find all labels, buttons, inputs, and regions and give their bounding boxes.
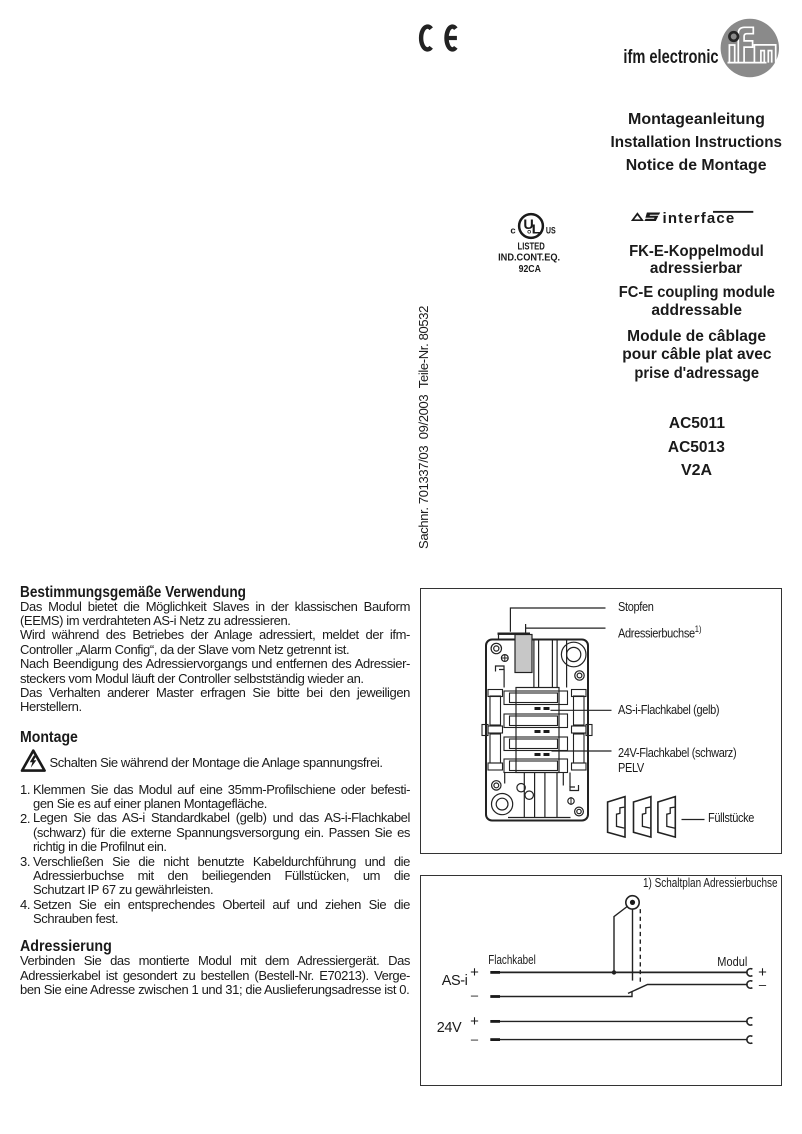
svg-text:L: L [532,222,541,237]
svg-text:–: – [758,977,766,992]
svg-text:24V: 24V [436,1020,461,1036]
svg-text:+: + [470,964,479,981]
svg-text:c: c [510,226,515,237]
svg-text:92CA: 92CA [519,264,541,275]
svg-text:Flachkabel: Flachkabel [488,953,535,967]
svg-text:US: US [546,225,556,236]
svg-text:–: – [470,1032,478,1047]
svg-text:1) Schaltplan Adressierbuchse: 1) Schaltplan Adressierbuchse [642,875,776,890]
svg-text:AS-i: AS-i [441,973,467,989]
svg-text:LISTED: LISTED [518,240,546,252]
svg-text:–: – [470,988,478,1003]
svg-text:+: + [470,1013,479,1030]
svg-text:Modul: Modul [717,956,747,970]
svg-text:IND.CONT.EQ.: IND.CONT.EQ. [498,252,560,263]
